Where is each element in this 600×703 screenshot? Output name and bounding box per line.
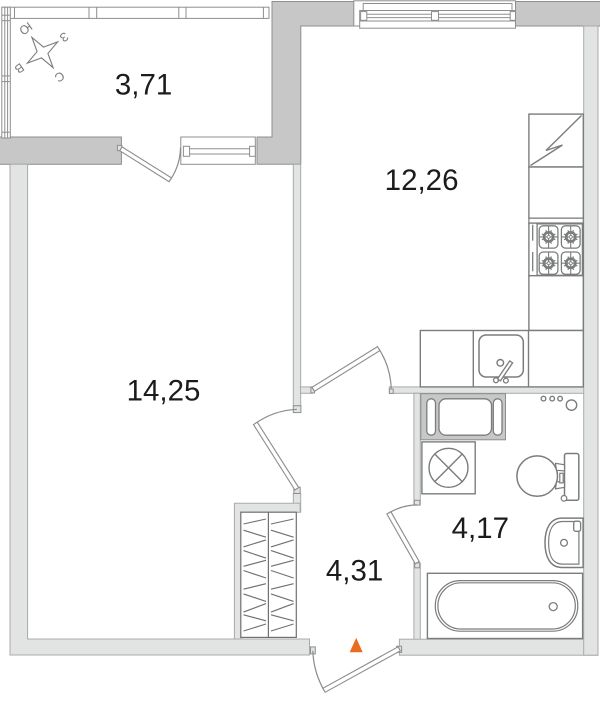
svg-text:12,26: 12,26 [385, 164, 459, 197]
svg-text:4,31: 4,31 [326, 555, 383, 588]
svg-text:3,71: 3,71 [115, 69, 172, 102]
svg-text:14,25: 14,25 [127, 375, 201, 408]
svg-text:4,17: 4,17 [452, 512, 509, 545]
